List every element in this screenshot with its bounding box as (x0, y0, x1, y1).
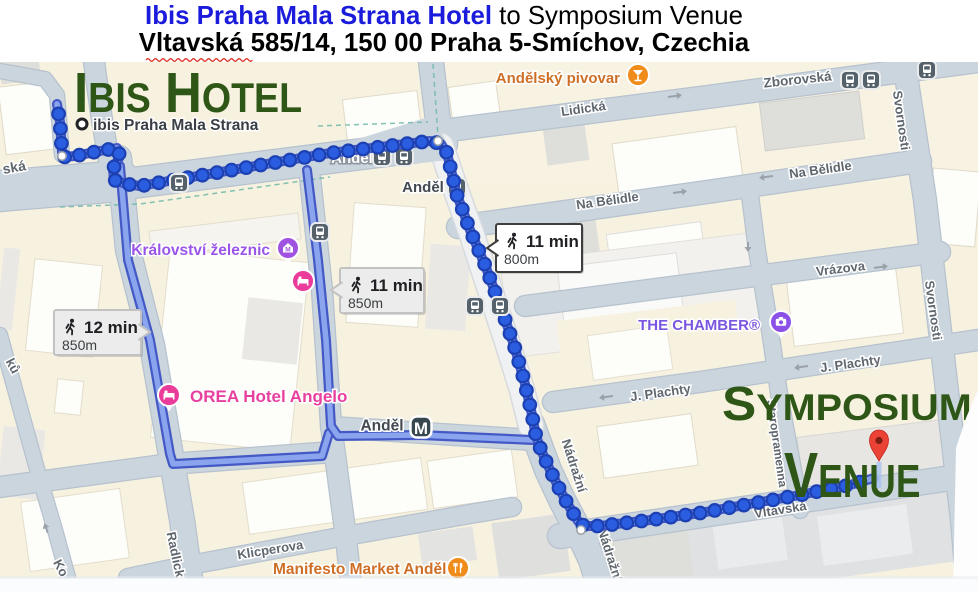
svg-text:Andělský pivovar: Andělský pivovar (496, 70, 620, 87)
svg-text:THE CHAMBER®: THE CHAMBER® (638, 317, 760, 334)
svg-text:800m: 800m (504, 251, 539, 267)
svg-text:Manifesto Market Anděl: Manifesto Market Anděl (273, 561, 446, 578)
svg-text:850m: 850m (62, 337, 97, 353)
svg-text:11 min: 11 min (526, 232, 579, 251)
svg-text:11 min: 11 min (370, 276, 423, 295)
svg-text:M: M (285, 246, 290, 253)
svg-text:Anděl: Anděl (402, 179, 444, 196)
svg-text:Anděl: Anděl (360, 418, 403, 435)
svg-text:12 min: 12 min (84, 318, 138, 337)
svg-text:OREA Hotel Angelo: OREA Hotel Angelo (190, 387, 347, 406)
svg-text:M: M (414, 419, 428, 438)
svg-text:850m: 850m (348, 295, 383, 311)
svg-text:Království železnic: Království železnic (131, 242, 270, 259)
